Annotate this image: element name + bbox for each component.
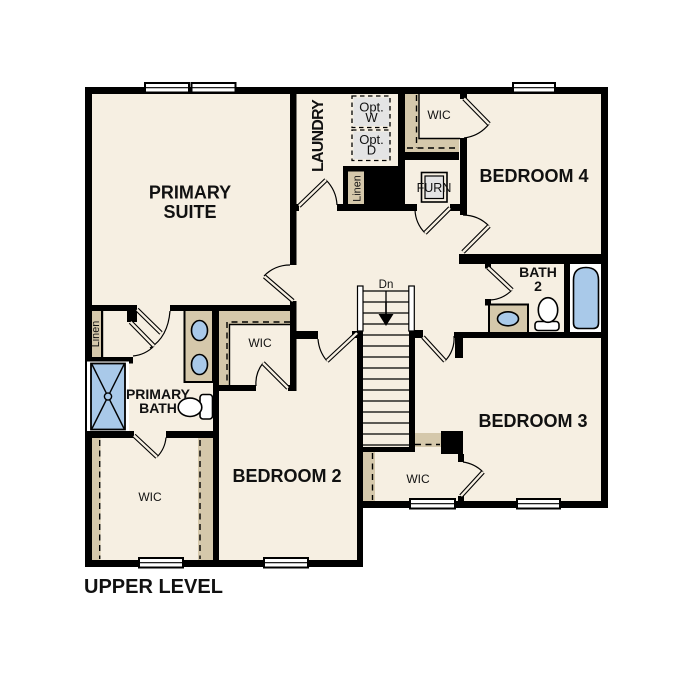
svg-text:WIC: WIC: [138, 490, 162, 504]
svg-text:Dn: Dn: [379, 279, 394, 291]
svg-text:UPPER LEVEL: UPPER LEVEL: [84, 576, 223, 598]
svg-text:BEDROOM 2: BEDROOM 2: [232, 466, 341, 486]
svg-text:W: W: [365, 110, 378, 125]
svg-text:Linen: Linen: [352, 175, 364, 201]
svg-text:Linen: Linen: [90, 321, 102, 347]
svg-text:PRIMARY: PRIMARY: [149, 183, 231, 203]
svg-text:BEDROOM 4: BEDROOM 4: [479, 166, 588, 186]
svg-text:SUITE: SUITE: [163, 202, 216, 222]
svg-text:WIC: WIC: [248, 336, 272, 350]
svg-text:WIC: WIC: [406, 472, 430, 486]
svg-text:2: 2: [534, 278, 542, 294]
svg-text:D: D: [367, 143, 376, 158]
svg-text:FURN: FURN: [417, 181, 452, 195]
svg-text:BATH: BATH: [139, 400, 177, 416]
svg-text:BEDROOM 3: BEDROOM 3: [478, 411, 587, 431]
svg-text:WIC: WIC: [427, 108, 451, 122]
svg-text:LAUNDRY: LAUNDRY: [310, 99, 327, 172]
